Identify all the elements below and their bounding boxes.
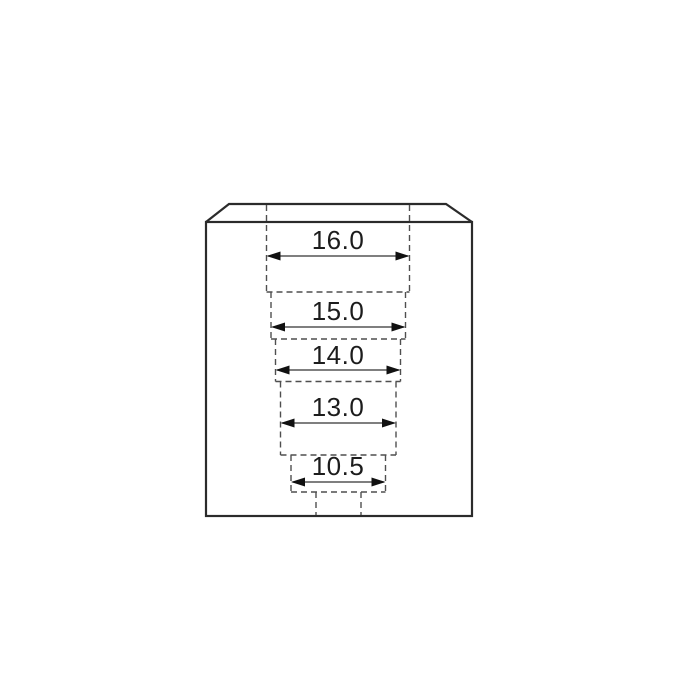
dimension-step3: 14.0	[276, 340, 401, 375]
dim-label-step3: 14.0	[312, 340, 365, 370]
drawing-canvas: 16.0 15.0 14.0 13.0 10.5	[0, 0, 700, 700]
left-arrowhead-icon	[291, 478, 305, 487]
dim-label-step1: 16.0	[312, 225, 365, 255]
dimension-step1: 16.0	[267, 225, 410, 261]
right-arrowhead-icon	[387, 366, 401, 375]
dimension-step2: 15.0	[271, 296, 406, 332]
part-top-bevel-outline	[206, 204, 472, 222]
right-arrowhead-icon	[396, 252, 410, 261]
right-arrowhead-icon	[392, 323, 406, 332]
dim-label-step2: 15.0	[312, 296, 365, 326]
dim-label-step4: 13.0	[312, 392, 365, 422]
left-arrowhead-icon	[276, 366, 290, 375]
technical-drawing: 16.0 15.0 14.0 13.0 10.5	[0, 0, 700, 700]
right-arrowhead-icon	[372, 478, 386, 487]
left-arrowhead-icon	[267, 252, 281, 261]
left-arrowhead-icon	[271, 323, 285, 332]
dimension-step5: 10.5	[291, 451, 386, 487]
left-arrowhead-icon	[281, 419, 295, 428]
right-arrowhead-icon	[382, 419, 396, 428]
dimension-step4: 13.0	[281, 392, 397, 428]
dim-label-step5: 10.5	[312, 451, 365, 481]
